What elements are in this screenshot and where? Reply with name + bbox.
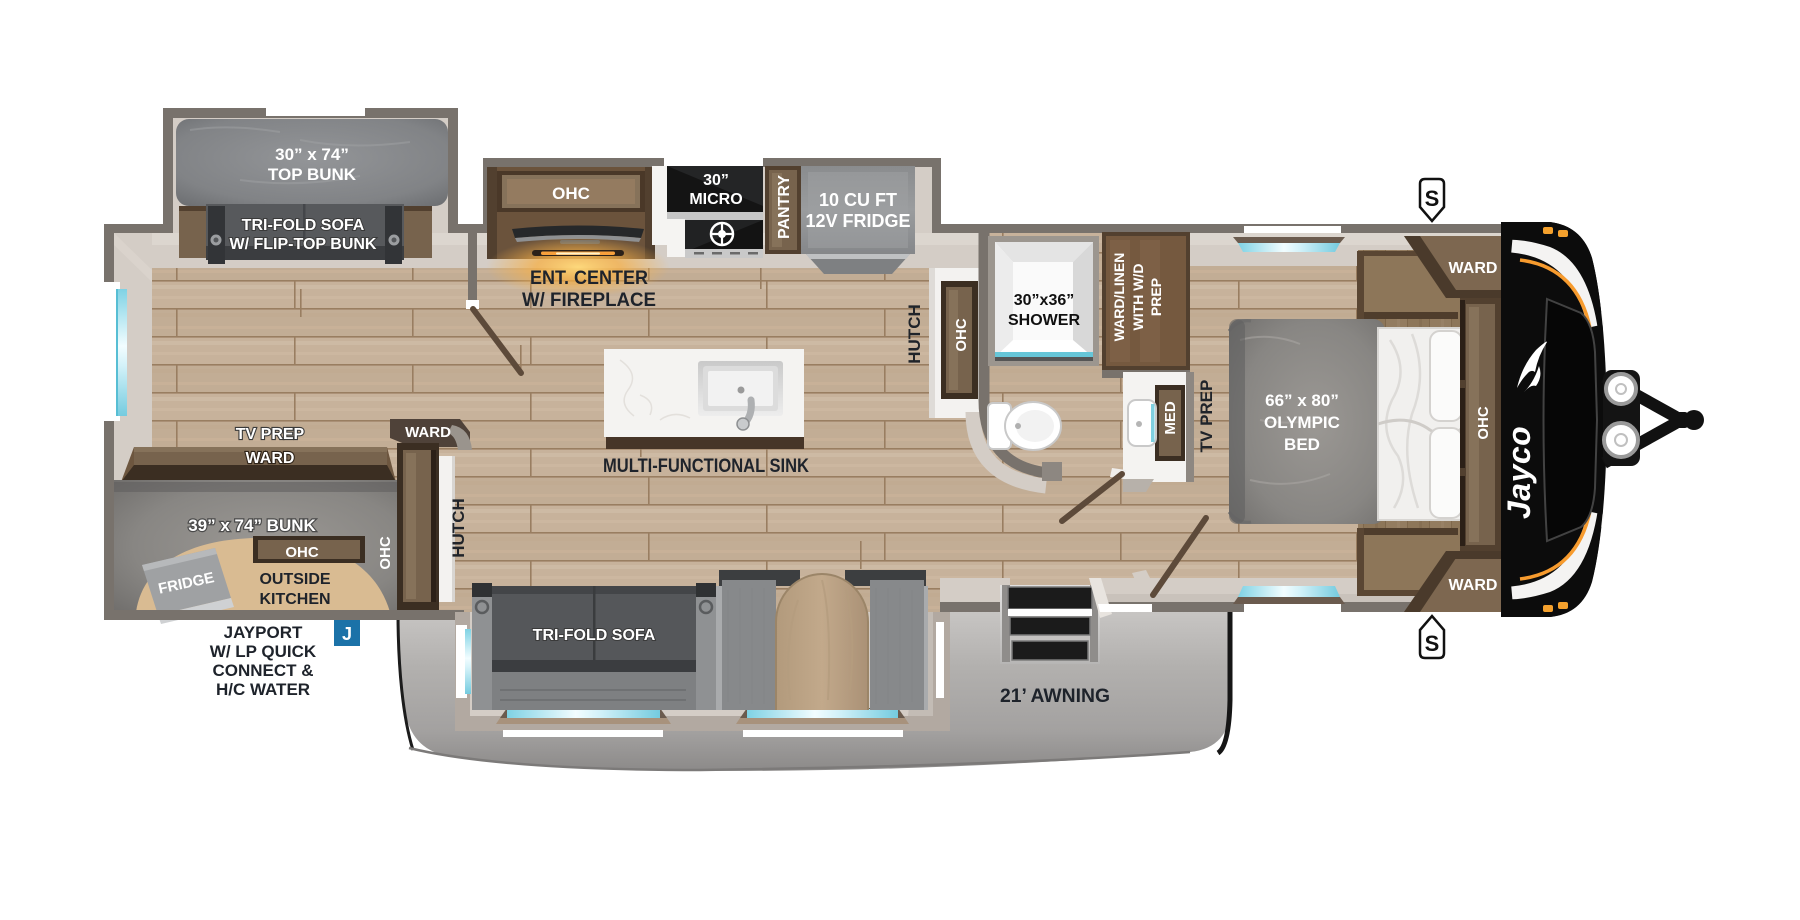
svg-text:S: S xyxy=(1425,631,1440,656)
svg-text:WARD: WARD xyxy=(1449,260,1498,277)
svg-text:BED: BED xyxy=(1284,435,1320,454)
svg-text:ENT. CENTER: ENT. CENTER xyxy=(530,268,648,289)
svg-text:W/ FIREPLACE: W/ FIREPLACE xyxy=(522,290,656,311)
svg-text:WARD: WARD xyxy=(405,424,451,441)
svg-text:PREP: PREP xyxy=(1148,278,1164,316)
svg-text:W/ LP QUICK: W/ LP QUICK xyxy=(210,642,317,661)
svg-text:10 CU FT: 10 CU FT xyxy=(819,190,897,210)
svg-text:PANTRY: PANTRY xyxy=(776,175,793,239)
svg-text:Jayco: Jayco xyxy=(1501,426,1537,519)
svg-text:TV PREP: TV PREP xyxy=(1197,380,1216,453)
svg-text:KITCHEN: KITCHEN xyxy=(259,591,330,608)
svg-text:MICRO: MICRO xyxy=(689,191,742,208)
svg-text:WARD/LINEN: WARD/LINEN xyxy=(1111,253,1127,342)
svg-text:TRI-FOLD SOFA: TRI-FOLD SOFA xyxy=(533,627,656,644)
svg-text:OHC: OHC xyxy=(377,536,394,570)
svg-text:OHC: OHC xyxy=(285,544,319,561)
svg-text:J: J xyxy=(342,624,352,644)
svg-text:CONNECT &: CONNECT & xyxy=(212,661,313,680)
svg-text:66” x 80”: 66” x 80” xyxy=(1265,391,1339,410)
svg-text:39” x 74” BUNK: 39” x 74” BUNK xyxy=(188,516,316,535)
svg-text:JAYPORT: JAYPORT xyxy=(224,623,303,642)
svg-text:HUTCH: HUTCH xyxy=(905,304,924,364)
svg-text:S: S xyxy=(1425,186,1440,211)
svg-text:30”x36”: 30”x36” xyxy=(1014,292,1075,309)
svg-text:WARD: WARD xyxy=(1449,577,1498,594)
svg-text:30” x 74”: 30” x 74” xyxy=(275,145,349,164)
svg-text:MED: MED xyxy=(1162,401,1179,435)
svg-text:WARD: WARD xyxy=(246,450,295,467)
svg-text:30”: 30” xyxy=(703,172,729,189)
svg-text:OHC: OHC xyxy=(953,318,970,352)
svg-text:TV PREP: TV PREP xyxy=(236,426,305,443)
svg-text:HUTCH: HUTCH xyxy=(449,498,468,558)
svg-text:OLYMPIC: OLYMPIC xyxy=(1264,413,1340,432)
svg-text:TRI-FOLD SOFA: TRI-FOLD SOFA xyxy=(242,217,365,234)
svg-text:MULTI-FUNCTIONAL SINK: MULTI-FUNCTIONAL SINK xyxy=(603,456,809,477)
svg-text:WITH W/D: WITH W/D xyxy=(1130,264,1146,331)
svg-text:12V FRIDGE: 12V FRIDGE xyxy=(805,211,910,231)
svg-text:21’ AWNING: 21’ AWNING xyxy=(1000,686,1110,707)
svg-text:TOP BUNK: TOP BUNK xyxy=(268,165,357,184)
svg-text:OHC: OHC xyxy=(552,184,590,203)
svg-text:OUTSIDE: OUTSIDE xyxy=(259,571,330,588)
svg-text:OHC: OHC xyxy=(1475,406,1492,440)
svg-text:H/C WATER: H/C WATER xyxy=(216,680,310,699)
svg-text:W/ FLIP-TOP BUNK: W/ FLIP-TOP BUNK xyxy=(230,236,377,253)
svg-text:SHOWER: SHOWER xyxy=(1008,312,1080,329)
